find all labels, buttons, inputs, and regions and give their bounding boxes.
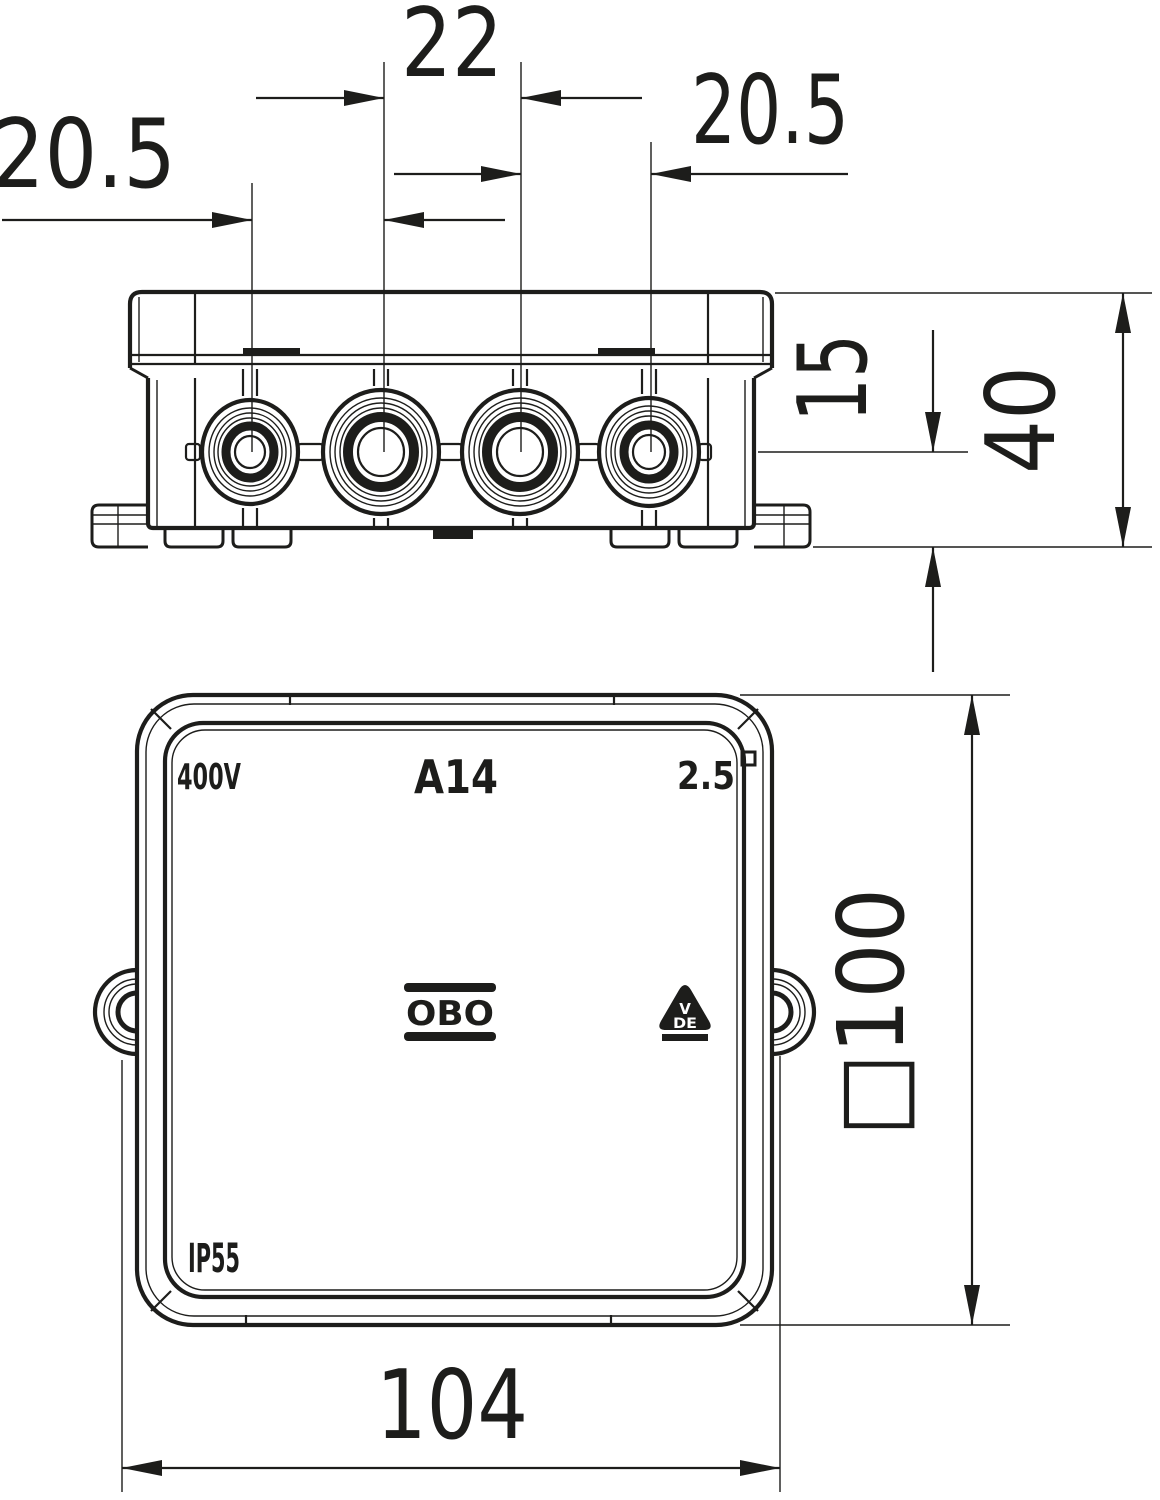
marking-model: A14 (414, 750, 498, 804)
side-view (92, 292, 810, 547)
obo-logo-text: OBO (406, 994, 494, 1034)
obo-logo: OBO (404, 983, 496, 1041)
vde-triangle-icon: V DE (659, 985, 710, 1041)
dimension-gland-spacings: 22 20.5 20.5 (0, 0, 849, 452)
dim-label-104: 104 (376, 1351, 528, 1461)
gland-stems (243, 369, 656, 526)
cable-gland-3 (462, 390, 578, 514)
dim-label-100: □100 (818, 888, 925, 1136)
dim-label-15: 15 (779, 334, 889, 422)
technical-drawing-page: 22 20.5 20.5 15 (0, 0, 1160, 1500)
cable-gland-4 (599, 398, 699, 506)
dim-40: 40 (967, 293, 1131, 547)
vde-letters-de: DE (673, 1016, 697, 1032)
dim-15: 15 (779, 330, 941, 672)
dimension-side-heights: 15 40 (758, 293, 1152, 672)
front-view: 400V A14 2.5 IP55 OBO V DE (95, 695, 814, 1325)
lid-clip-tab-right (598, 348, 655, 356)
dim-22: 22 (256, 0, 642, 106)
lid-outline (130, 292, 772, 368)
dim-label-20-5-right: 20.5 (691, 56, 849, 166)
marking-conductor-size: 2.5 (677, 754, 735, 798)
bottom-feet (165, 528, 737, 547)
lid-step-right (754, 368, 772, 378)
front-ear-left (95, 970, 137, 1054)
center-foot-tab (433, 528, 473, 539)
dim-label-40: 40 (967, 366, 1077, 474)
cable-gland-1 (202, 400, 298, 504)
cable-gland-2 (323, 390, 439, 514)
side-ear-left (92, 505, 148, 547)
lid-step-left (130, 368, 148, 378)
junction-box-drawing: 22 20.5 20.5 15 (0, 0, 1160, 1500)
dim-label-20-5-left: 20.5 (0, 100, 176, 210)
front-ear-right (772, 970, 814, 1054)
marking-protection: IP55 (188, 1236, 240, 1282)
side-ear-right (754, 505, 810, 547)
dim-label-22: 22 (401, 0, 503, 99)
marking-voltage: 400V (177, 757, 241, 798)
